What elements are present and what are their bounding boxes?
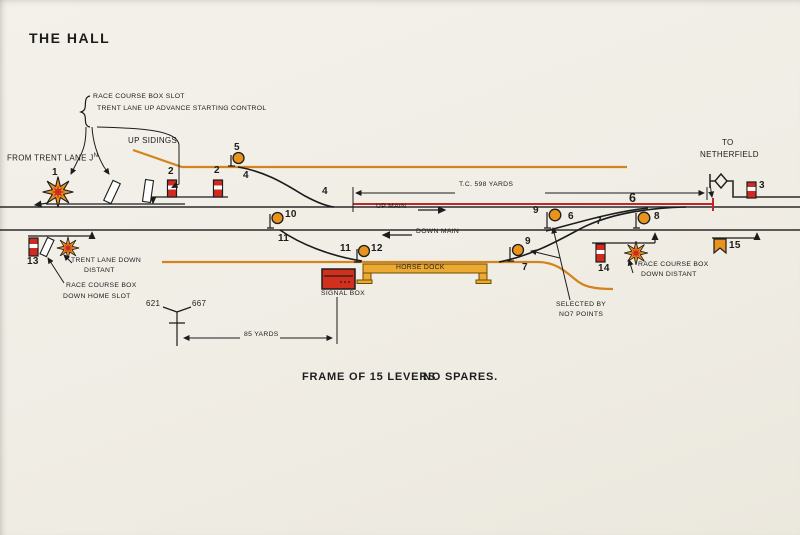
signal-box-diagram: THE HALL RACE COURSE BOX SLOT TRENT LANE… [0,0,800,535]
signal-13-post [29,237,54,256]
signal-number-2b: 2 [214,166,220,176]
points-number-7a: 7 [596,217,602,227]
disc-signal-5 [228,153,244,167]
signal-3-post [747,182,756,198]
points-number-6b: 6 [568,212,574,222]
signal-15-bracket [712,234,757,239]
disc-signal-8 [633,212,650,228]
label-milepost-right: 667 [192,300,206,308]
label-race-home-slot-1: RACE COURSE BOX [66,283,137,290]
signal-14-bracket [592,234,655,244]
up-sidings-track [133,150,627,167]
points-number-6a: 6 [629,192,636,205]
signal-number-12: 12 [371,244,383,254]
label-horse-dock: HORSE DOCK [396,265,445,272]
slot-annotation-brace [81,96,90,127]
label-85-yards: 85 YARDS [244,332,279,339]
signal-box-building [322,269,355,289]
points-number-11b: 11 [340,244,351,254]
signal-number-5: 5 [234,143,240,153]
label-no-spares: NO SPARES. [423,372,498,383]
slot-post-b [143,180,154,203]
label-netherfield: NETHERFIELD [700,151,759,159]
label-track-circuit: T.C. 598 YARDS [459,182,513,189]
label-from-trent-lane-sup: N [94,153,99,159]
race-distant-arrow [629,260,633,273]
trent-lane-down-distant-burst [57,237,79,259]
label-trent-lane-down-2: DISTANT [84,268,115,275]
points-number-7b: 7 [522,263,528,273]
label-down-main: DOWN MAIN [416,229,459,236]
label-race-down-distant-1: RACE COURSE BOX [638,262,709,269]
label-race-home-slot-2: DOWN HOME SLOT [63,294,131,301]
label-trent-lane-up-advance: TRENT LANE UP ADVANCE STARTING CONTROL [97,106,266,113]
signal-2-bracket [153,197,228,203]
signal-15-fishtail [714,239,726,253]
label-selected-by-1: SELECTED BY [556,302,606,309]
label-selected-by-2: NO7 POINTS [559,312,603,319]
signal-number-3: 3 [759,181,765,191]
signal-number-15: 15 [729,241,741,251]
signal-number-2a: 2 [168,167,174,177]
label-from-trent-lane-text: FROM TRENT LANE J [7,154,94,163]
signal-number-8: 8 [654,212,660,222]
label-signal-box: SIGNAL BOX [321,291,365,298]
signal-number-9b: 9 [525,237,531,247]
label-race-down-distant-2: DOWN DISTANT [641,272,697,279]
label-frame: FRAME OF 15 LEVERS [302,372,436,383]
disc-signal-9-upper [544,209,561,228]
signal-2b-post [214,180,223,197]
points-number-4b: 4 [322,187,328,197]
signal-2a-post [168,180,177,197]
signal-number-14: 14 [598,264,610,274]
points-number-11a: 11 [278,234,289,244]
label-from-trent-lane: FROM TRENT LANE JN [7,153,98,163]
home-slot-arrow [48,258,64,283]
label-milepost-left: 621 [146,300,160,308]
signal-number-13: 13 [27,257,39,267]
signal-number-1: 1 [52,168,58,178]
page-title: THE HALL [29,31,110,45]
points-number-4a: 4 [243,171,249,181]
label-up-main: UP MAIN [376,204,406,211]
signal-number-9a: 9 [533,206,539,216]
signal-13-bracket [28,233,92,237]
label-to: TO [722,139,734,147]
label-trent-lane-down-1: TRENT LANE DOWN [71,258,141,265]
signal-14-post [596,244,605,262]
signal-number-10: 10 [285,210,297,220]
milepost-symbol [163,307,191,346]
points-4-curve [238,167,334,207]
disc-signal-10 [267,213,283,229]
level-crossing-diamond-icon [715,174,727,188]
label-race-course-box-slot: RACE COURSE BOX SLOT [93,94,185,101]
signal-1-burst [43,177,74,208]
slot-post-a [104,180,121,203]
label-up-sidings: UP SIDINGS [128,137,177,145]
